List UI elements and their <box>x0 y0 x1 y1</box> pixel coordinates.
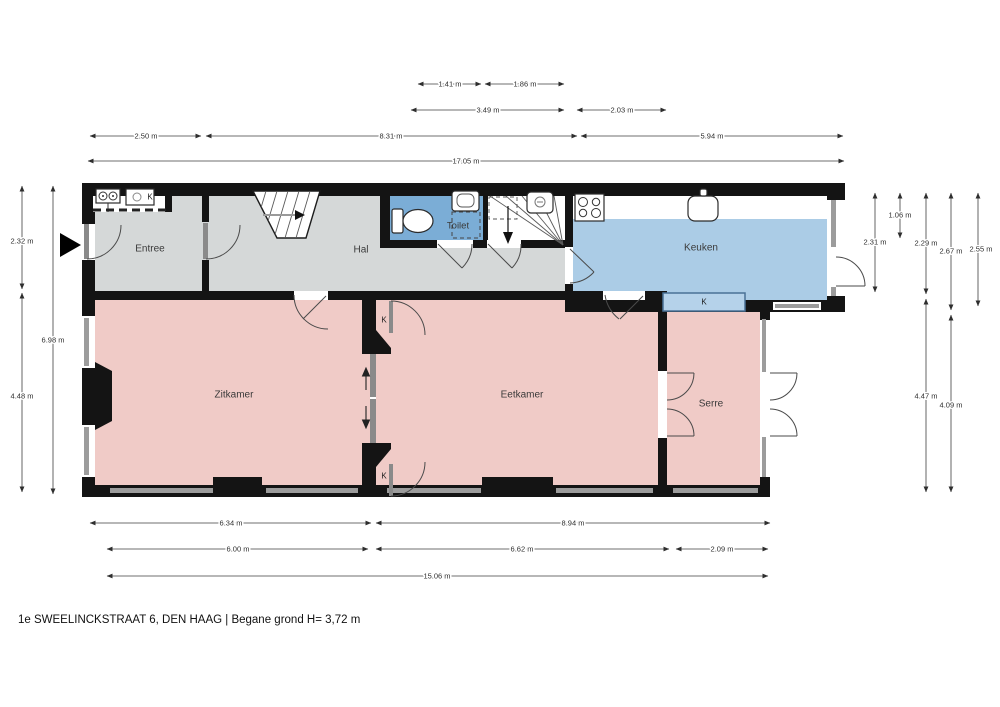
dim-top-6: 8.31 m <box>206 132 577 141</box>
dim-bottom-1: 6.34 m <box>90 519 371 528</box>
dim-bottom-4: 6.62 m <box>376 545 669 554</box>
dim-right-5: 2.67 m <box>940 193 963 310</box>
dim-right-4: 4.47 m <box>915 299 938 492</box>
door-opening <box>437 240 473 248</box>
svg-text:4.47 m: 4.47 m <box>915 392 938 401</box>
chimney-left <box>95 362 112 430</box>
window-bottom <box>673 488 758 493</box>
faucet-icon <box>700 189 707 196</box>
svg-text:2.67 m: 2.67 m <box>940 247 963 256</box>
wall-meterkast <box>165 196 172 212</box>
closet-label-ensuite-top: K <box>381 316 387 325</box>
door-leaf <box>389 464 393 496</box>
door-opening <box>487 240 521 248</box>
room-label-hal: Hal <box>353 245 368 256</box>
svg-text:2.31 m: 2.31 m <box>864 238 887 247</box>
svg-text:6.34 m: 6.34 m <box>220 519 243 528</box>
window-serre-right-2 <box>762 437 766 477</box>
dim-top-4: 2.03 m <box>577 106 666 115</box>
wall-corner <box>760 477 770 497</box>
closet-label-keuken-kast: K <box>701 298 707 307</box>
dim-right-6: 4.09 m <box>940 315 963 492</box>
svg-text:6.62 m: 6.62 m <box>511 545 534 554</box>
svg-text:2.03 m: 2.03 m <box>611 106 634 115</box>
wall-corner <box>827 296 845 312</box>
keuken-floor <box>573 219 827 300</box>
window-bottom <box>266 488 358 493</box>
chimney-eetkamer <box>482 477 553 487</box>
entrance-arrow-icon <box>60 233 81 257</box>
door-opening <box>658 371 667 438</box>
meter-dot <box>102 195 104 197</box>
dim-bottom-2: 8.94 m <box>376 519 770 528</box>
svg-text:6.98 m: 6.98 m <box>42 336 65 345</box>
svg-text:6.00 m: 6.00 m <box>227 545 250 554</box>
svg-text:8.31 m: 8.31 m <box>380 132 403 141</box>
window-keuken-south <box>775 304 819 308</box>
meter-box-icon <box>96 189 120 203</box>
window-keuken-right <box>831 200 836 247</box>
window-zitkamer-left-2 <box>84 427 89 475</box>
svg-text:5.94 m: 5.94 m <box>701 132 724 141</box>
room-label-zitkamer: Zitkamer <box>215 390 255 401</box>
dim-top-2: 1.86 m <box>485 80 564 89</box>
svg-text:2.55 m: 2.55 m <box>970 245 993 254</box>
sliding-door-split <box>370 397 376 399</box>
door-leaf <box>389 301 393 333</box>
dim-bottom-3: 6.00 m <box>107 545 368 554</box>
plan-title: 1e SWEELINCKSTRAAT 6, DEN HAAG | Begane … <box>18 614 360 626</box>
stove-icon <box>575 194 604 221</box>
kitchen-sink-icon <box>688 196 718 221</box>
room-label-keuken: Keuken <box>684 243 718 254</box>
window-bottom <box>387 488 481 493</box>
door-arc <box>770 373 797 400</box>
svg-text:15.06 m: 15.06 m <box>423 572 450 581</box>
svg-text:1.41 m: 1.41 m <box>439 80 462 89</box>
dim-top-5: 2.50 m <box>90 132 201 141</box>
svg-text:2.29 m: 2.29 m <box>915 239 938 248</box>
room-label-serre: Serre <box>699 399 724 410</box>
door-arc <box>770 409 797 436</box>
door-leaf <box>203 223 208 259</box>
dim-bottom-5: 2.09 m <box>676 545 768 554</box>
svg-text:1.06 m: 1.06 m <box>889 211 912 220</box>
svg-text:4.09 m: 4.09 m <box>940 401 963 410</box>
dim-left-3: 6.98 m <box>42 186 65 494</box>
floorplan-svg: Entree Hal Toilet Keuken Zitkamer Eetkam… <box>0 0 1000 707</box>
svg-text:2.50 m: 2.50 m <box>135 132 158 141</box>
svg-text:8.94 m: 8.94 m <box>562 519 585 528</box>
window-zitkamer-left-1 <box>84 318 89 366</box>
dim-bottom-6: 15.06 m <box>107 572 768 581</box>
toilet-bowl-icon <box>403 210 433 233</box>
svg-text:2.32 m: 2.32 m <box>11 237 34 246</box>
dim-left-2: 4.48 m <box>11 293 34 492</box>
door-arc <box>836 257 865 286</box>
double-doors-serre-exterior <box>770 373 797 436</box>
wall-corner <box>760 300 770 320</box>
dim-right-1: 2.31 m <box>864 193 887 292</box>
door-leaf <box>84 224 89 259</box>
room-label-toilet: Toilet <box>447 221 470 232</box>
toilet-tank-icon <box>392 209 403 233</box>
svg-text:17.05 m: 17.05 m <box>452 157 479 166</box>
chimney-zitkamer <box>213 477 262 487</box>
wall-corner <box>827 183 845 200</box>
meter-dot <box>112 195 114 197</box>
wall-entree <box>202 196 209 222</box>
dim-right-2: 1.06 m <box>889 193 912 238</box>
door-opening <box>565 247 573 284</box>
dim-top-3: 3.49 m <box>411 106 564 115</box>
floorplan-canvas: Entree Hal Toilet Keuken Zitkamer Eetkam… <box>0 0 1000 707</box>
dim-right-3: 2.29 m <box>915 193 938 294</box>
wall-toilet-south <box>380 240 573 248</box>
closet-label-meterkast: K <box>147 193 153 202</box>
room-label-eetkamer: Eetkamer <box>501 390 544 401</box>
svg-text:4.48 m: 4.48 m <box>11 392 34 401</box>
dim-right-7: 2.55 m <box>970 193 993 306</box>
svg-text:3.49 m: 3.49 m <box>477 106 500 115</box>
dim-top-8: 17.05 m <box>88 157 844 166</box>
door-opening <box>603 291 645 300</box>
svg-text:1.86 m: 1.86 m <box>514 80 537 89</box>
wall-hal-south <box>82 291 667 300</box>
closet-label-ensuite-bottom: K <box>381 472 387 481</box>
dim-top-7: 5.94 m <box>581 132 843 141</box>
window-bottom <box>556 488 653 493</box>
svg-text:2.09 m: 2.09 m <box>711 545 734 554</box>
window-bottom <box>110 488 213 493</box>
room-label-entree: Entree <box>135 244 165 255</box>
dim-left-1: 2.32 m <box>11 186 34 289</box>
dim-top-1: 1.41 m <box>418 80 481 89</box>
window-serre-right-1 <box>762 319 766 372</box>
door-keuken-exterior <box>836 257 865 286</box>
wall-entree <box>202 260 209 291</box>
